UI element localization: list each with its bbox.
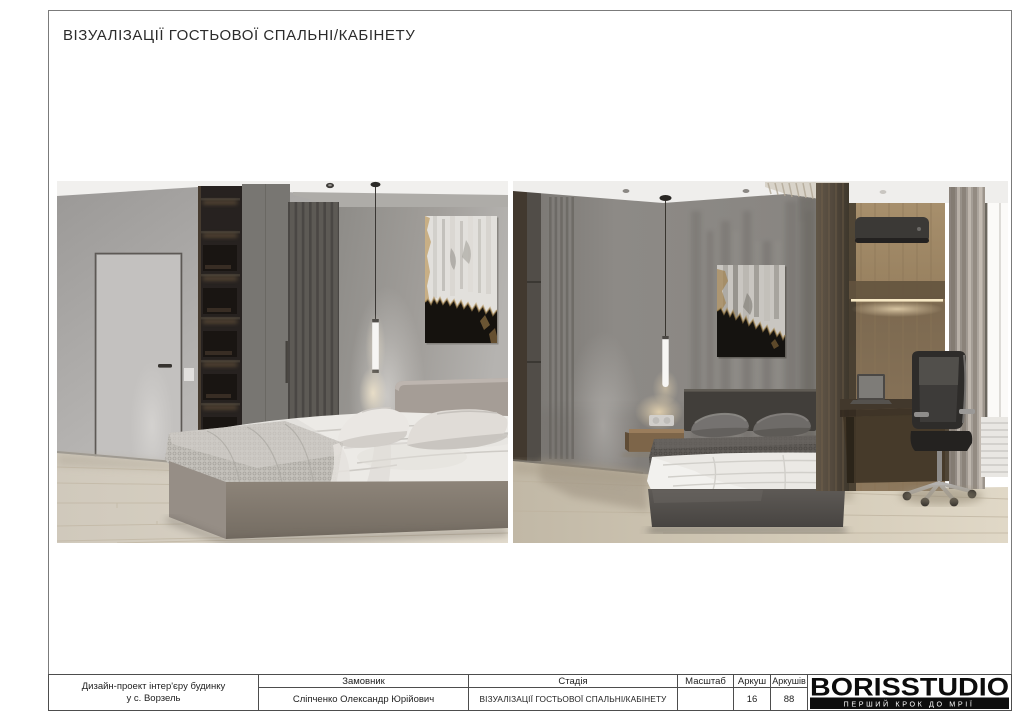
svg-text:ПЕРШИЙ КРОК ДО МРІЇ: ПЕРШИЙ КРОК ДО МРІЇ	[844, 700, 975, 709]
